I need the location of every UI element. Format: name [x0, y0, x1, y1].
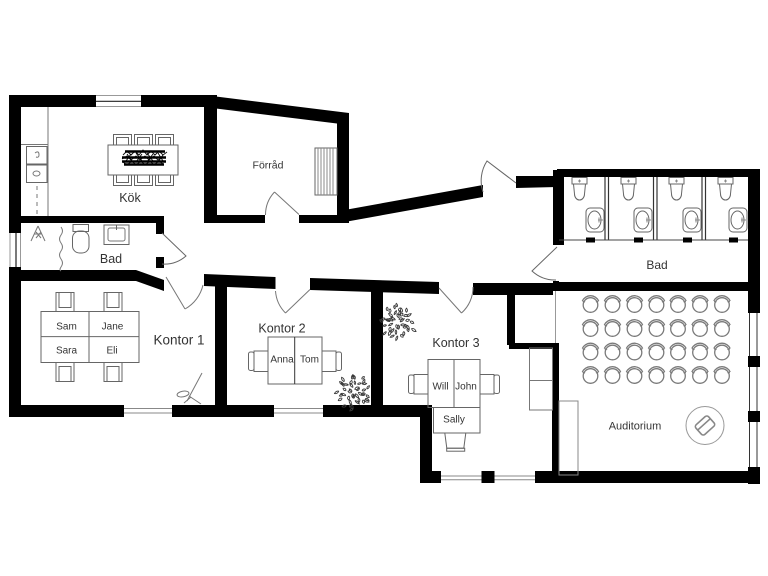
svg-text:Tom: Tom [300, 355, 319, 366]
svg-text:Will: Will [432, 382, 448, 393]
svg-text:Förråd: Förråd [253, 160, 284, 172]
svg-text:Bad: Bad [100, 252, 122, 266]
svg-text:Kontor 3: Kontor 3 [432, 336, 479, 350]
svg-text:Sara: Sara [56, 346, 78, 357]
svg-text:John: John [455, 382, 477, 393]
svg-text:Bad: Bad [646, 258, 667, 272]
svg-text:Kontor 2: Kontor 2 [258, 322, 305, 336]
svg-text:Auditorium: Auditorium [609, 421, 662, 433]
svg-text:Jane: Jane [102, 322, 124, 333]
svg-text:Kök: Kök [119, 191, 141, 205]
svg-text:Kontor 1: Kontor 1 [153, 333, 204, 348]
svg-text:Sally: Sally [443, 415, 465, 426]
svg-text:Sam: Sam [56, 322, 77, 333]
svg-text:Anna: Anna [270, 355, 294, 366]
svg-text:Eli: Eli [106, 346, 117, 357]
